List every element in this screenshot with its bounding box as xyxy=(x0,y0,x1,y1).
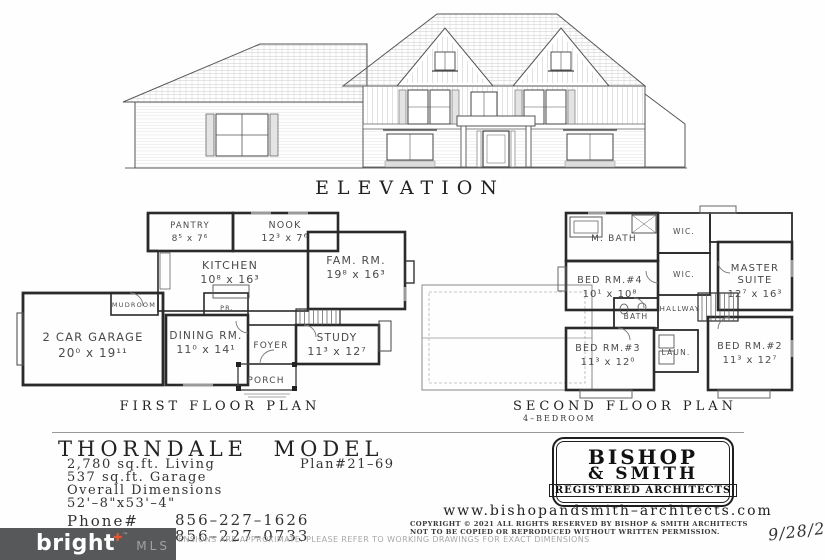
bright-accent-icon: ✚ xyxy=(113,531,122,544)
plan-sheet: ELEVATION xyxy=(0,0,825,560)
elevation-drawing xyxy=(105,4,705,176)
room-label: BATH xyxy=(624,312,649,321)
elevation-left-wing xyxy=(123,44,367,168)
room-bed-2 xyxy=(708,317,792,390)
room-dims: 19⁸ x 16³ xyxy=(326,268,385,281)
master-closet xyxy=(710,213,792,242)
room-label: PANTRY xyxy=(170,221,210,231)
first-floor-plan: PANTRY 8⁵ x 7⁶ NOOK 12³ x 7⁶ KITCHEN 10⁸… xyxy=(8,205,418,401)
room-label: MUDROOM xyxy=(112,301,156,309)
second-floor-subtitle: 4–BEDROOM xyxy=(523,414,596,423)
room-label: BED RM.#2 xyxy=(717,341,782,352)
room-label: SUITE xyxy=(737,275,772,286)
room-label: FOYER xyxy=(253,341,288,351)
titleblock-divider xyxy=(52,432,744,433)
dimensions-disclaimer: ENSIONS ARE APPROXIMATE. PLEASE REFER TO… xyxy=(178,535,590,544)
room-label: DINING RM. xyxy=(169,330,242,342)
room-label: MASTER xyxy=(731,263,779,274)
room-dims: 10⁸ x 16³ xyxy=(200,273,259,286)
room-label: BED RM.#3 xyxy=(575,343,640,354)
architect-subtitle: REGISTERED ARCHITECTS xyxy=(549,484,737,497)
column xyxy=(526,126,531,167)
right-wing xyxy=(645,94,685,167)
room-label: 2 CAR GARAGE xyxy=(42,330,143,344)
room-dims: 8⁵ x 7⁶ xyxy=(172,234,209,244)
room-label: LAUN. xyxy=(662,348,691,357)
architect-name-line1: BISHOP xyxy=(588,448,698,466)
architect-logo: BISHOP & SMITH REGISTERED ARCHITECTS xyxy=(552,437,734,507)
room-pantry xyxy=(148,213,233,251)
room-label: PR. xyxy=(220,304,234,312)
architect-name-line2: & SMITH xyxy=(588,466,698,482)
room-label: PORCH xyxy=(247,376,284,386)
bright-mls-watermark: bright ✚ ™ MLS xyxy=(0,528,176,560)
plan-number: Plan#21–69 xyxy=(300,459,395,472)
first-floor-labels: PANTRY 8⁵ x 7⁶ NOOK 12³ x 7⁶ KITCHEN 10⁸… xyxy=(42,220,385,386)
trademark-symbol: ™ xyxy=(122,532,128,539)
second-floor-labels: M. BATH WIC. WIC. BED RM.#4 10¹ x 10⁸ MA… xyxy=(575,227,782,368)
room-dims: 11³ x 12⁷ xyxy=(723,355,778,366)
room-label: BED RM.#4 xyxy=(577,275,642,286)
elevation-title: ELEVATION xyxy=(280,177,540,199)
room-label: KITCHEN xyxy=(202,259,258,272)
room-dims: 12³ x 7⁶ xyxy=(261,233,308,244)
room-dims: 10¹ x 10⁸ xyxy=(583,289,638,300)
room-dims: 12⁷ x 16³ xyxy=(728,289,783,300)
room-dims: 11⁰ x 14¹ xyxy=(176,343,235,356)
date-note: 9/28/2 xyxy=(767,519,825,545)
room-dims: 11³ x 12⁷ xyxy=(307,345,366,358)
room-label: NOOK xyxy=(268,220,301,231)
mls-wordmark: MLS xyxy=(136,539,170,553)
copyright-line-1: COPYRIGHT © 2021 ALL RIGHTS RESERVED BY … xyxy=(410,520,748,528)
fireplace xyxy=(405,261,414,283)
second-floor-title: SECOND FLOOR PLAN xyxy=(495,399,755,414)
bay-window xyxy=(700,206,736,213)
column xyxy=(461,126,466,167)
room-label: WIC. xyxy=(673,270,695,279)
second-floor-plan: M. BATH WIC. WIC. BED RM.#4 10¹ x 10⁸ MA… xyxy=(418,205,810,401)
overall-dimensions: 52'–8"x53'–4" xyxy=(67,498,176,511)
room-label: WIC. xyxy=(673,227,695,236)
kitchen-counter xyxy=(160,253,170,289)
washer xyxy=(659,335,674,348)
bright-wordmark: bright xyxy=(36,531,115,556)
room-label: HALLWAY xyxy=(660,305,701,313)
study-bay-window xyxy=(379,321,391,351)
room-dims: 11³ x 12⁰ xyxy=(581,357,636,368)
architect-website: www.bishopandsmith–architects.com xyxy=(408,503,808,519)
room-label: FAM. RM. xyxy=(326,254,386,267)
room-label: STUDY xyxy=(317,332,358,344)
room-dims: 20⁰ x 19¹¹ xyxy=(58,346,128,360)
shutter xyxy=(206,114,214,156)
first-floor-title: FIRST FLOOR PLAN xyxy=(85,399,355,414)
room-label: M. BATH xyxy=(591,234,637,244)
kitchen-island xyxy=(213,285,249,298)
shutter xyxy=(270,114,278,156)
